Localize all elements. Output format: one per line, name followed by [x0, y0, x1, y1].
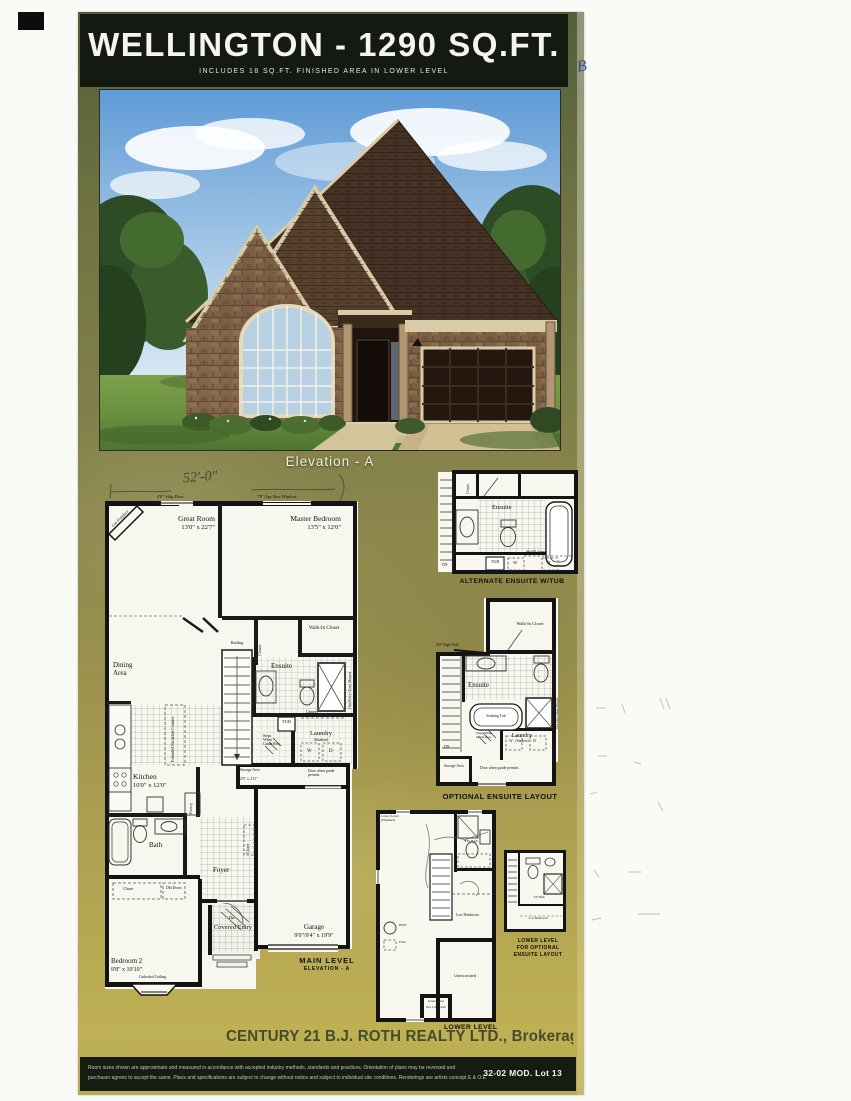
disclaimer-text: Room sizes shown are approximate and mea… — [88, 1064, 496, 1083]
opt-label-storage: Storage Area — [444, 764, 468, 768]
lower-label-area-title: Lower Level (Finished) — [381, 815, 413, 822]
label-garage-dims: 9'0"/9'4" x 19'9" — [277, 933, 351, 940]
lower-level-optional-plan: 3 Pc Bath Low Headroom LOWER LEVEL FOR O… — [504, 850, 572, 972]
alt-label-closet: Closet — [466, 484, 470, 494]
title-band: WELLINGTON - 1290 SQ.FT. INCLUDES 18 SQ.… — [80, 14, 568, 87]
label-dining-area: Dining Area — [113, 662, 147, 677]
opt-label-walk-in-closet: Walk-In Closet — [512, 622, 548, 627]
lower-label-furnace: Furn — [399, 941, 405, 945]
alt-label-shelf-uppers: Shelf/Uppers — [526, 550, 546, 554]
plan-title: WELLINGTON - 1290 SQ.FT. — [88, 26, 560, 64]
label-bedroom2-closet: Closet — [123, 887, 133, 891]
disclaimer-line-1: Room sizes shown are approximate and mea… — [88, 1064, 496, 1074]
label-dn: Dn — [229, 916, 234, 921]
alt-label-dn: DN — [442, 563, 447, 567]
opt-label-shower: One Piece Glass Shower — [556, 698, 560, 729]
label-master-bedroom: Master Bedroom — [273, 515, 341, 523]
label-kitchen: Kitchen — [133, 773, 157, 781]
lower-level-plan: Lower Level (Finished) 3 Pc Bath Low Hea… — [376, 810, 502, 1040]
flyer-sheet: WELLINGTON - 1290 SQ.FT. INCLUDES 18 SQ.… — [78, 12, 584, 1095]
opt-label-dryer: D — [533, 739, 536, 743]
lower-level-optional-drawing — [504, 850, 572, 935]
alternate-ensuite-plan: Ensuite Closet TUB Shelf/Uppers W D DN A… — [438, 470, 586, 600]
plan-subtitle: INCLUDES 18 SQ.FT. FINISHED AREA IN LOWE… — [199, 68, 449, 75]
lower-label-unexcavated-small: Unexcavated — [422, 1000, 450, 1003]
label-great-room: Great Room — [153, 515, 215, 523]
label-cathedral-ceiling: Cathedral Ceiling — [139, 975, 166, 979]
lower-label-cold-cellar: Opt. Cold Cellar — [422, 1006, 450, 1009]
lot-label: 32-02 MOD. Lot 13 — [483, 1068, 562, 1078]
opt-label-ensuite: Ensuite — [468, 682, 489, 690]
label-uppers: Uppers — [306, 710, 318, 715]
alt-ensuite-caption: ALTERNATE ENSUITE W/TUB — [438, 578, 586, 585]
alt-label-dryer: D — [547, 561, 550, 566]
label-tub: TUB — [278, 720, 295, 725]
label-grade-door: Door when grade permits — [308, 769, 346, 777]
label-walk-in-closet: Walk-In Closet — [303, 626, 345, 632]
label-box-window: 7'8"/2pc Box Window — [257, 495, 297, 500]
pencil-margin-marks — [586, 40, 716, 940]
opt-label-laundry-note: (Sunken) — [502, 740, 542, 744]
label-ensuite: Ensuite — [271, 663, 292, 671]
scan-corner-mark — [18, 12, 44, 30]
lower-opt-label-low-headroom: Low Headroom — [520, 917, 556, 920]
label-washer: W — [307, 749, 312, 755]
label-railing: Railing — [219, 641, 255, 646]
lower-opt-caption-2: FOR OPTIONAL — [508, 945, 568, 951]
elevation-caption: Elevation - A — [100, 454, 560, 469]
label-dbl-doors: Dbl Doors — [165, 886, 183, 890]
lower-label-low-headroom: Low Headroom — [456, 914, 479, 918]
label-shower: One Piece Glass Shower — [348, 672, 352, 709]
alt-label-washer: W — [513, 561, 517, 566]
opt-label-high-wall: 4'0" High Wall — [436, 643, 459, 647]
lower-label-bath: 3 Pc Bath — [456, 840, 486, 844]
label-foyer: Foyer — [213, 867, 229, 875]
lower-opt-caption-1: LOWER LEVEL — [508, 938, 568, 944]
label-laundry-note: (Sunken) — [297, 738, 345, 742]
house-rendering-art — [100, 90, 560, 450]
label-bath: Bath — [149, 842, 162, 850]
lower-label-hwt: HWT — [399, 924, 407, 928]
optional-ensuite-caption: OPTIONAL ENSUITE LAYOUT — [424, 792, 576, 801]
opt-label-soaking-tub: Soaking Tub — [478, 714, 514, 718]
label-foyer-closet: Closet — [246, 844, 250, 854]
lower-opt-label-bath: 3 Pc Bath — [524, 896, 554, 899]
label-covered-entry: Covered Entry — [211, 924, 255, 931]
label-storage-area: Storage Area — [240, 768, 266, 772]
opt-label-dn: DN — [444, 745, 449, 749]
main-level-plan: 52'-0" 4'0" Sldg Door 7'8"/2pc Box Windo… — [105, 468, 361, 1008]
opt-label-grade-door: Door when grade permits — [480, 766, 520, 770]
label-kitchen-dims: 10'0" x 12'0" — [133, 782, 167, 789]
label-sliding-door: 4'0" Sldg Door — [157, 495, 184, 500]
label-master-bedroom-dims: 13'5" x 12'0" — [273, 524, 341, 531]
opt-label-washer: W — [509, 739, 513, 743]
label-great-room-dims: 13'0" x 22'7" — [153, 524, 215, 531]
disclaimer-line-2: purchaser agrees to accept the same. Pla… — [88, 1074, 496, 1084]
scanned-floorplan-flyer: { "colors": {"sheet_green": "#8b8a4f", "… — [0, 0, 851, 1101]
label-master-closet: Closet — [258, 644, 263, 656]
label-storage-dims: 2'0" x 4'11" — [240, 777, 270, 781]
opt-label-steps-grade: Steps When Grade Req. — [476, 732, 493, 739]
label-dryer: D — [329, 749, 333, 755]
alt-label-ensuite: Ensuite — [492, 504, 512, 511]
caption-main-level: MAIN LEVEL — [299, 956, 355, 965]
handwritten-width-dimension: 52'-0" — [183, 469, 219, 487]
footer-band: Room sizes shown are approximate and mea… — [80, 1057, 576, 1091]
label-garage: Garage — [283, 924, 345, 932]
label-extended-counter: Extended Breakfast Counter — [171, 717, 175, 762]
lower-opt-caption-3: ENSUITE LAYOUT — [508, 952, 568, 958]
label-steps-grade: Steps When Grade Req. — [263, 734, 281, 747]
label-pantry: Pantry — [189, 803, 194, 814]
lower-label-unexcavated: Unexcavated — [440, 974, 490, 979]
alt-label-tub: TUB — [486, 560, 504, 565]
label-bedroom2: Bedroom 2 — [111, 958, 142, 966]
house-rendering — [100, 90, 560, 450]
brokerage-watermark: CENTURY 21 B.J. ROTH REALTY LTD., Broker… — [226, 1028, 573, 1046]
label-bedroom2-dims: 9'8" x 10'10" — [111, 967, 142, 974]
caption-main-level-elevation: ELEVATION - A — [299, 966, 355, 972]
optional-ensuite-plan: Walk-In Closet 4'0" High Wall Ensuite So… — [436, 598, 586, 810]
